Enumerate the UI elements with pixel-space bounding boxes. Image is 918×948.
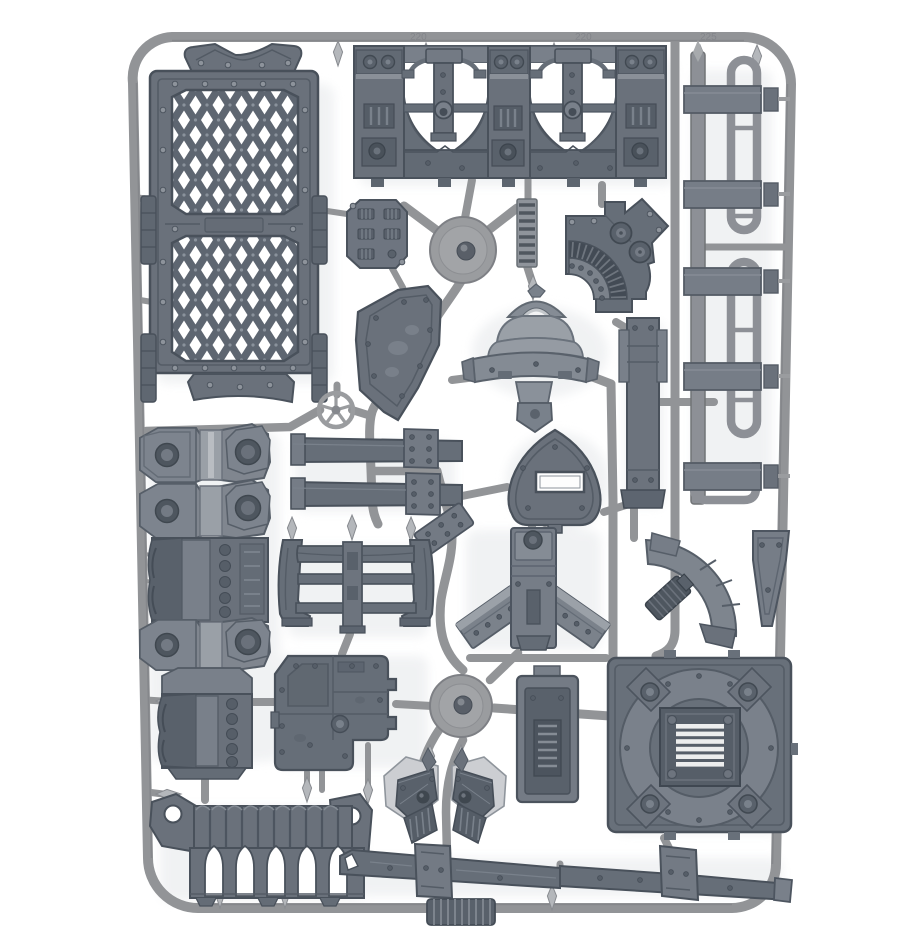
svg-text:220: 220 (575, 32, 592, 43)
svg-text:220: 220 (410, 32, 427, 43)
svg-text:225: 225 (700, 32, 717, 43)
